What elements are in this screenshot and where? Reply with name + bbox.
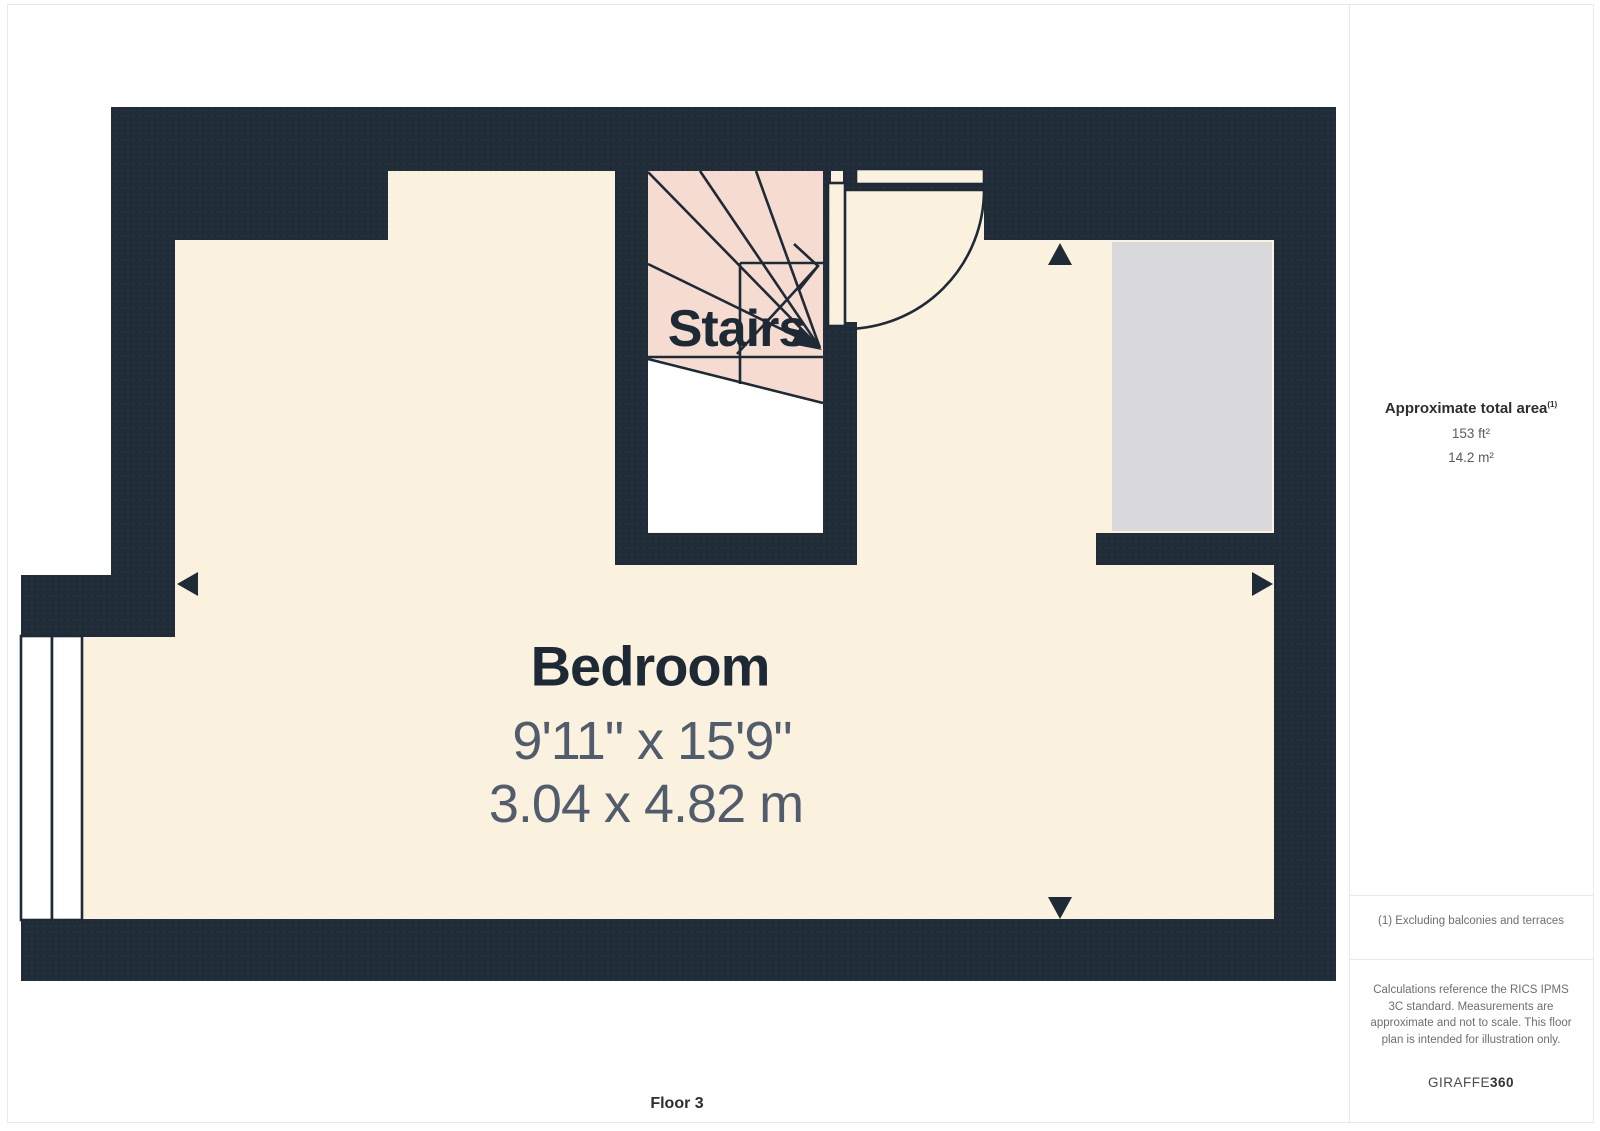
brand-logo-bold: 360 <box>1490 1075 1514 1090</box>
area-summary: Approximate total area(1) 153 ft² 14.2 m… <box>1349 400 1593 465</box>
window-pane <box>52 636 82 920</box>
window <box>21 636 82 920</box>
area-footnote: (1) Excluding balconies and terraces <box>1349 915 1593 927</box>
stairs-label: Stairs <box>668 299 807 359</box>
brand-logo-regular: GIRAFFE <box>1428 1075 1490 1090</box>
door-frame <box>856 169 984 184</box>
window-pane <box>21 636 52 920</box>
sidebar-divider <box>1350 959 1593 960</box>
area-value-metric: 14.2 m² <box>1349 450 1593 465</box>
brand-logo: GIRAFFE360 <box>1349 1075 1593 1090</box>
floor-label: Floor 3 <box>650 1095 703 1113</box>
room-dimensions-metric: 3.04 x 4.82 m <box>489 773 803 835</box>
reduced-headroom-zone <box>1112 242 1272 531</box>
disclaimer-text: Calculations reference the RICS IPMS 3C … <box>1365 982 1577 1049</box>
area-footnote-ref: (1) <box>1547 400 1557 409</box>
area-title: Approximate total area(1) <box>1349 400 1593 417</box>
floorplan-page: Stairs Bedroom 9'11" x 15'9" 3.04 x 4.82… <box>0 0 1600 1131</box>
sidebar-separator <box>1349 4 1350 1122</box>
room-label-bedroom: Bedroom <box>531 634 770 699</box>
room-dimensions-imperial: 9'11" x 15'9" <box>512 710 791 772</box>
floorplan-drawing <box>0 0 1345 1131</box>
area-value-imperial: 153 ft² <box>1349 426 1593 441</box>
door-leaf <box>828 183 845 326</box>
sidebar-divider <box>1350 895 1593 896</box>
